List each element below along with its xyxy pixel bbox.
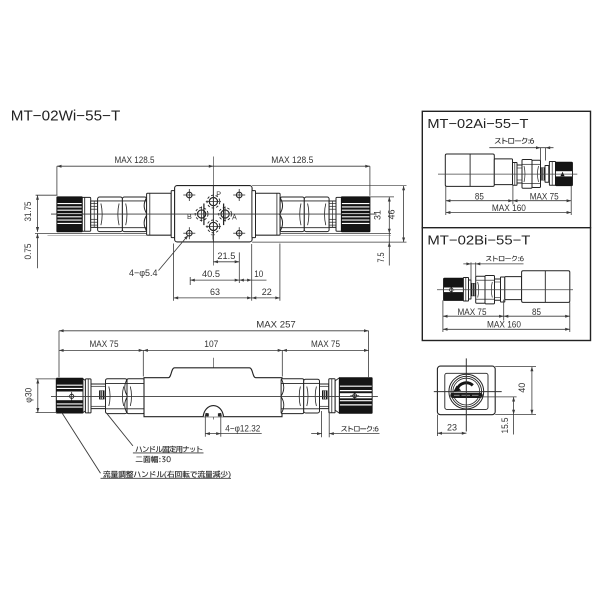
- svg-text:15.5: 15.5: [500, 418, 511, 434]
- svg-text:P: P: [216, 190, 221, 199]
- svg-text:MT−02Ai−55−T: MT−02Ai−55−T: [427, 116, 528, 131]
- svg-text:MAX 75: MAX 75: [458, 307, 487, 318]
- svg-text:107: 107: [204, 339, 218, 350]
- svg-text:MAX 75: MAX 75: [530, 192, 559, 203]
- svg-text:MAX 128.5: MAX 128.5: [115, 155, 155, 166]
- svg-text:85: 85: [532, 307, 541, 318]
- svg-text:31: 31: [373, 210, 384, 220]
- svg-text:0.75: 0.75: [23, 244, 34, 260]
- svg-text:63: 63: [210, 287, 220, 298]
- svg-text:MAX 160: MAX 160: [487, 319, 521, 330]
- svg-text:23: 23: [447, 422, 457, 433]
- svg-text:MAX 75: MAX 75: [311, 339, 340, 350]
- svg-text:4−φ12.32: 4−φ12.32: [225, 423, 260, 434]
- svg-text:85: 85: [475, 192, 484, 203]
- svg-text:MT−02Wi−55−T: MT−02Wi−55−T: [11, 109, 121, 125]
- svg-text:T: T: [211, 232, 216, 241]
- svg-text:21.5: 21.5: [217, 251, 235, 262]
- svg-text:MAX 160: MAX 160: [492, 203, 526, 214]
- svg-text:31.75: 31.75: [23, 202, 34, 222]
- svg-text:22: 22: [262, 287, 272, 298]
- svg-text:B: B: [187, 212, 192, 221]
- svg-text:10: 10: [254, 269, 263, 280]
- svg-text:MAX 128.5: MAX 128.5: [271, 155, 313, 166]
- svg-text:40.5: 40.5: [202, 269, 220, 280]
- svg-text:4−φ5.4: 4−φ5.4: [129, 268, 158, 279]
- svg-text:40: 40: [517, 383, 528, 393]
- svg-text:MAX 257: MAX 257: [256, 319, 296, 330]
- svg-text:MAX 75: MAX 75: [90, 339, 119, 350]
- svg-text:MT−02Bi−55−T: MT−02Bi−55−T: [427, 233, 530, 248]
- svg-text:7.5: 7.5: [376, 253, 387, 263]
- svg-text:46: 46: [387, 210, 398, 220]
- svg-text:φ30: φ30: [24, 388, 35, 403]
